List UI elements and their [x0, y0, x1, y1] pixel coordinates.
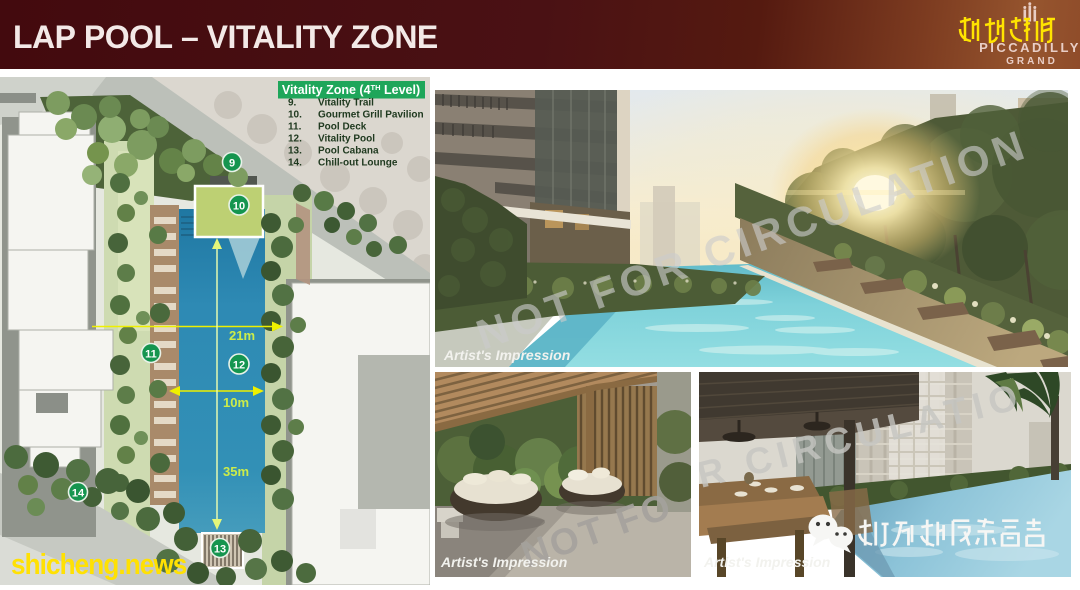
svg-text:Vitality Trail: Vitality Trail	[318, 98, 374, 109]
svg-text:10m: 10m	[223, 395, 249, 410]
svg-text:13.: 13.	[288, 146, 302, 157]
svg-text:10: 10	[233, 201, 245, 213]
svg-text:Artist's Impression: Artist's Impression	[443, 347, 570, 363]
svg-text:14.: 14.	[288, 158, 302, 169]
svg-text:12: 12	[233, 360, 245, 372]
svg-text:11: 11	[145, 349, 157, 361]
svg-text:Pool Cabana: Pool Cabana	[318, 146, 379, 157]
svg-text:Chill-out Lounge: Chill-out Lounge	[318, 158, 398, 169]
svg-text:GRAND: GRAND	[1006, 56, 1058, 67]
svg-text:12.: 12.	[288, 134, 302, 145]
svg-text:11.: 11.	[288, 122, 302, 133]
svg-text:9: 9	[229, 158, 235, 170]
svg-text:Vitality Zone (4TH Level): Vitality Zone (4TH Level)	[282, 83, 420, 97]
svg-text:Pool Deck: Pool Deck	[318, 122, 367, 133]
svg-text:10.: 10.	[288, 110, 302, 121]
svg-text:21m: 21m	[229, 328, 255, 343]
svg-text:Artist's Impression: Artist's Impression	[703, 554, 830, 570]
svg-text:13: 13	[214, 544, 226, 556]
svg-text:Artist's Impression: Artist's Impression	[440, 554, 567, 570]
svg-text:Gourmet Grill Pavilion: Gourmet Grill Pavilion	[318, 110, 424, 121]
svg-text:Vitality Pool: Vitality Pool	[318, 134, 375, 145]
svg-text:9.: 9.	[288, 98, 297, 109]
svg-text:35m: 35m	[223, 464, 249, 479]
svg-text:14: 14	[72, 488, 85, 500]
